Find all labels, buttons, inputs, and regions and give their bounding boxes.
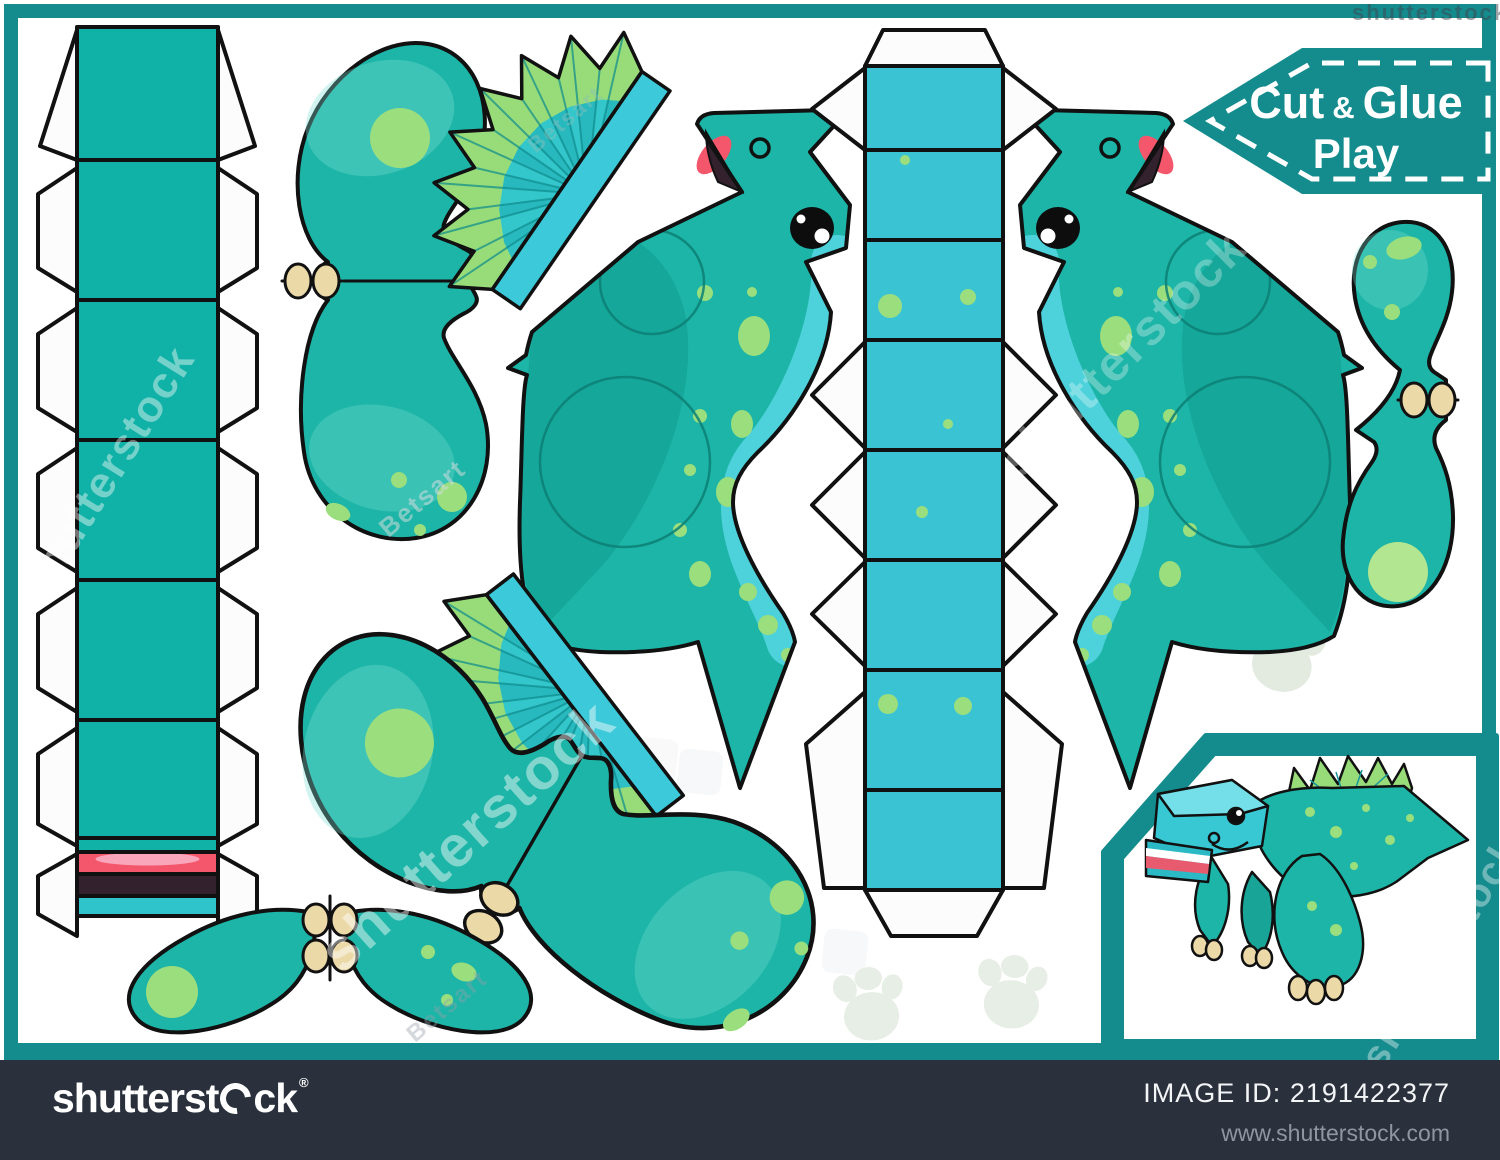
registered-mark: ® <box>299 1076 308 1089</box>
claw <box>1401 383 1427 417</box>
watermark-square <box>676 748 724 796</box>
image-id: IMAGE ID: 2191422377 <box>1143 1078 1450 1109</box>
stock-image-page: Cut&Glue Play shutterstock shutterstock … <box>0 0 1500 1160</box>
strip-spot <box>943 419 953 429</box>
preview-eye <box>1228 808 1244 824</box>
image-meta: IMAGE ID: 2191422377 www.shutterstock.co… <box>1143 1078 1450 1147</box>
glue-tab <box>865 890 1003 936</box>
strip-spot <box>878 294 902 318</box>
jaw-band <box>77 896 218 916</box>
tongue-band <box>96 853 200 866</box>
shutter-aperture-icon <box>214 1077 258 1121</box>
strip-spot <box>900 155 910 165</box>
strip-spot <box>916 506 928 518</box>
website-url: www.shutterstock.com <box>1143 1120 1450 1147</box>
preview-eye-highlight <box>1236 810 1242 816</box>
watermark-text: shutterstock <box>1352 0 1500 25</box>
banner-line2: Play <box>1313 130 1400 177</box>
strip-spot <box>960 289 976 305</box>
strip-body <box>865 66 1003 890</box>
logo-text-right: ck <box>253 1078 297 1119</box>
claw <box>1289 976 1307 1000</box>
claw <box>1429 383 1455 417</box>
strip-spot <box>954 697 972 715</box>
foot-spot <box>146 966 198 1018</box>
claw <box>1307 980 1325 1004</box>
claw <box>1325 976 1343 1000</box>
shutterstock-logo: shutterstck® <box>52 1078 308 1119</box>
logo-text-left: shutterst <box>52 1078 218 1119</box>
claw <box>1206 940 1222 960</box>
glue-tab <box>865 30 1003 66</box>
foot-spot <box>421 945 435 959</box>
footer-bar: shutterstck® IMAGE ID: 2191422377 www.sh… <box>0 1060 1500 1160</box>
claw <box>1256 948 1272 968</box>
craft-sheet-illustration: Cut&Glue Play shutterstock shutterstock … <box>0 0 1500 1160</box>
strip-spot <box>878 694 898 714</box>
mouth-dark-band <box>77 874 218 896</box>
